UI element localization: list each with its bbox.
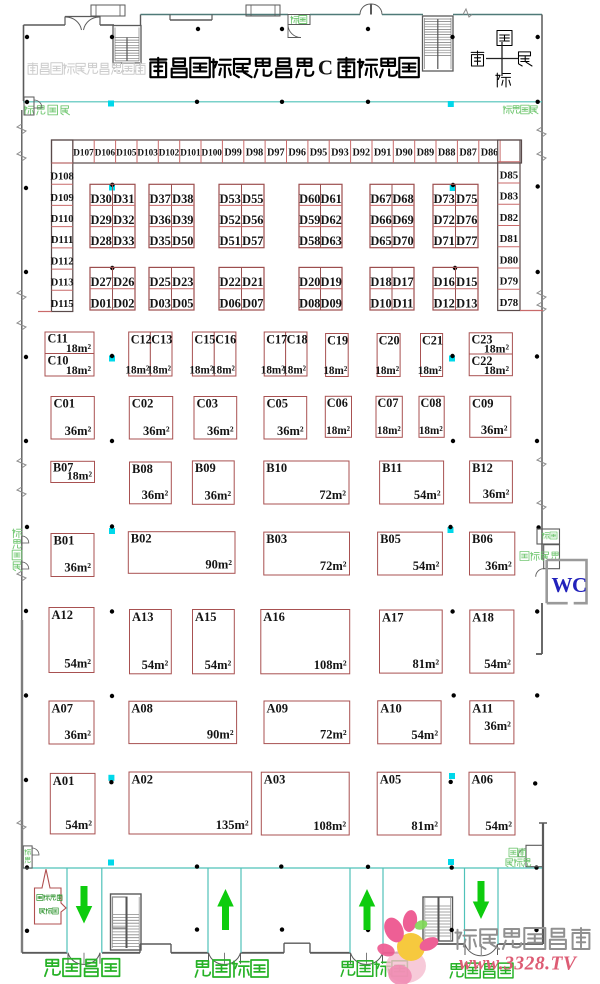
svg-text:C18: C18	[287, 333, 308, 347]
svg-text:D79: D79	[500, 276, 519, 288]
svg-text:36m²: 36m²	[64, 561, 91, 575]
svg-text:D61: D61	[321, 192, 342, 206]
svg-text:C13: C13	[151, 333, 172, 347]
svg-text:81m²: 81m²	[411, 819, 438, 833]
svg-text:18m²: 18m²	[323, 365, 348, 377]
svg-text:D101: D101	[180, 148, 201, 158]
svg-text:D10: D10	[370, 296, 391, 310]
svg-text:36m²: 36m²	[483, 487, 510, 501]
svg-text:108m²: 108m²	[314, 658, 347, 672]
svg-text:D38: D38	[172, 192, 193, 206]
svg-text:90m²: 90m²	[205, 557, 232, 571]
svg-text:D93: D93	[331, 148, 349, 159]
svg-text:D69: D69	[392, 213, 413, 227]
svg-text:C02: C02	[132, 397, 154, 411]
svg-text:D111: D111	[51, 235, 73, 246]
svg-text:C03: C03	[197, 397, 219, 411]
svg-text:D37: D37	[150, 192, 171, 206]
svg-text:D20: D20	[299, 275, 320, 289]
svg-text:54m²: 54m²	[65, 818, 92, 832]
svg-text:B03: B03	[266, 532, 287, 546]
svg-text:D17: D17	[392, 275, 413, 289]
svg-text:36m²: 36m²	[65, 424, 92, 438]
svg-text:D32: D32	[113, 213, 134, 227]
svg-text:36m²: 36m²	[277, 424, 304, 438]
svg-text:D19: D19	[321, 275, 342, 289]
svg-text:A13: A13	[132, 610, 154, 624]
svg-text:D113: D113	[51, 278, 74, 289]
svg-text:D56: D56	[242, 213, 263, 227]
svg-text:C05: C05	[267, 397, 289, 411]
svg-text:D76: D76	[456, 213, 477, 227]
svg-text:D115: D115	[51, 299, 74, 310]
svg-text:D105: D105	[116, 148, 137, 158]
svg-text:D66: D66	[370, 213, 391, 227]
svg-text:36m²: 36m²	[64, 728, 91, 742]
svg-text:C07: C07	[378, 396, 399, 410]
svg-text:D75: D75	[456, 192, 477, 206]
svg-text:A15: A15	[195, 610, 217, 624]
svg-text:D95: D95	[310, 148, 328, 159]
svg-text:D59: D59	[299, 213, 320, 227]
svg-text:D78: D78	[500, 297, 519, 309]
svg-text:D112: D112	[51, 256, 74, 267]
svg-text:D108: D108	[50, 172, 74, 183]
svg-text:A01: A01	[53, 774, 75, 788]
svg-text:36m²: 36m²	[207, 424, 234, 438]
svg-text:D89: D89	[417, 148, 435, 159]
svg-text:D63: D63	[321, 234, 342, 248]
svg-text:81m²: 81m²	[413, 657, 440, 671]
svg-text:D86: D86	[481, 148, 499, 159]
svg-text:D96: D96	[288, 148, 306, 159]
svg-text:D97: D97	[267, 148, 285, 159]
svg-text:C20: C20	[379, 334, 400, 348]
svg-text:D11: D11	[393, 296, 414, 310]
svg-text:B10: B10	[266, 461, 287, 475]
svg-text:D103: D103	[137, 148, 158, 158]
svg-text:54m²: 54m²	[414, 488, 441, 502]
svg-text:D13: D13	[456, 296, 477, 310]
svg-text:D67: D67	[370, 192, 391, 206]
svg-text:D99: D99	[224, 148, 242, 159]
svg-text:18m²: 18m²	[67, 469, 93, 483]
svg-text:C16: C16	[215, 333, 236, 347]
svg-text:D23: D23	[172, 275, 193, 289]
svg-text:C08: C08	[421, 396, 442, 410]
svg-text:D06: D06	[220, 296, 241, 310]
svg-text:18m²: 18m²	[211, 365, 236, 377]
svg-text:D60: D60	[299, 192, 320, 206]
svg-text:A02: A02	[132, 773, 154, 787]
svg-text:D08: D08	[299, 296, 320, 310]
svg-text:D53: D53	[220, 192, 241, 206]
svg-text:D25: D25	[150, 275, 171, 289]
svg-text:D110: D110	[51, 214, 74, 225]
svg-text:D65: D65	[370, 234, 391, 248]
svg-text:D102: D102	[159, 148, 180, 158]
svg-text:C06: C06	[327, 396, 348, 410]
svg-text:36m²: 36m²	[481, 423, 508, 437]
svg-text:D58: D58	[299, 234, 320, 248]
svg-text:B02: B02	[131, 532, 152, 546]
svg-text:D82: D82	[500, 212, 519, 224]
svg-text:54m²: 54m²	[413, 559, 440, 573]
svg-text:18m²: 18m²	[419, 425, 444, 437]
svg-text:D51: D51	[220, 234, 241, 248]
svg-text:C09: C09	[472, 397, 494, 411]
svg-text:D22: D22	[220, 275, 241, 289]
svg-text:D109: D109	[50, 193, 74, 204]
svg-text:D62: D62	[321, 213, 342, 227]
svg-text:D29: D29	[91, 213, 112, 227]
svg-text:C11: C11	[48, 332, 68, 346]
svg-text:D03: D03	[150, 296, 171, 310]
svg-text:A12: A12	[52, 608, 74, 622]
svg-text:72m²: 72m²	[319, 488, 346, 502]
svg-text:D90: D90	[395, 148, 413, 159]
svg-text:72m²: 72m²	[320, 559, 347, 573]
svg-text:D85: D85	[500, 169, 519, 181]
svg-text:D77: D77	[456, 234, 477, 248]
svg-text:B09: B09	[195, 461, 216, 475]
svg-text:18m²: 18m²	[418, 365, 443, 377]
svg-text:A06: A06	[472, 773, 494, 787]
svg-text:D87: D87	[459, 148, 477, 159]
svg-text:D92: D92	[353, 148, 371, 159]
svg-text:54m²: 54m²	[64, 657, 91, 671]
svg-text:A08: A08	[131, 702, 153, 716]
svg-text:D52: D52	[220, 213, 241, 227]
svg-text:18m²: 18m²	[282, 365, 307, 377]
svg-text:C01: C01	[54, 397, 76, 411]
svg-text:18m²: 18m²	[377, 425, 402, 437]
svg-text:D73: D73	[434, 192, 455, 206]
svg-text:36m²: 36m²	[485, 559, 512, 573]
svg-text:D16: D16	[434, 275, 455, 289]
svg-text:A05: A05	[380, 773, 402, 787]
svg-text:18m²: 18m²	[326, 425, 351, 437]
svg-text:D88: D88	[438, 148, 456, 159]
svg-text:D36: D36	[150, 213, 171, 227]
svg-text:B12: B12	[472, 461, 493, 475]
svg-text:D30: D30	[91, 192, 112, 206]
svg-text:C21: C21	[422, 334, 443, 348]
svg-text:C15: C15	[194, 333, 215, 347]
svg-text:D07: D07	[242, 296, 263, 310]
svg-text:D18: D18	[370, 275, 391, 289]
svg-text:D70: D70	[392, 234, 413, 248]
svg-text:D09: D09	[321, 296, 342, 310]
svg-text:D15: D15	[456, 275, 477, 289]
svg-text:18m²: 18m²	[147, 365, 172, 377]
svg-text:A09: A09	[267, 702, 289, 716]
svg-text:A11: A11	[472, 701, 493, 715]
svg-text:D80: D80	[500, 254, 519, 266]
svg-text:D55: D55	[242, 192, 263, 206]
svg-text:D05: D05	[172, 296, 193, 310]
svg-text:D01: D01	[91, 296, 112, 310]
svg-text:D57: D57	[242, 234, 263, 248]
svg-text:36m²: 36m²	[143, 424, 170, 438]
svg-text:D83: D83	[500, 191, 519, 203]
svg-text:www.3328.TV: www.3328.TV	[459, 954, 578, 975]
svg-text:90m²: 90m²	[207, 728, 234, 742]
svg-text:D106: D106	[95, 148, 116, 158]
svg-text:A10: A10	[380, 701, 402, 715]
svg-text:D35: D35	[150, 234, 171, 248]
svg-text:36m²: 36m²	[142, 488, 169, 502]
svg-text:D50: D50	[172, 234, 193, 248]
svg-text:D27: D27	[91, 275, 112, 289]
svg-text:36m²: 36m²	[205, 488, 232, 502]
svg-text:A07: A07	[52, 702, 74, 716]
svg-text:C19: C19	[327, 334, 348, 348]
svg-text:18m²: 18m²	[66, 363, 92, 377]
svg-text:D28: D28	[91, 234, 112, 248]
svg-text:54m²: 54m²	[411, 728, 438, 742]
svg-text:18m²: 18m²	[375, 365, 400, 377]
svg-text:D12: D12	[434, 296, 455, 310]
svg-text:D72: D72	[434, 213, 455, 227]
svg-text:36m²: 36m²	[484, 719, 511, 733]
svg-text:D33: D33	[113, 234, 134, 248]
svg-text:B01: B01	[54, 534, 75, 548]
svg-text:D02: D02	[113, 296, 134, 310]
svg-text:108m²: 108m²	[313, 819, 346, 833]
svg-text:D98: D98	[246, 148, 264, 159]
svg-text:D68: D68	[392, 192, 413, 206]
svg-text:D91: D91	[374, 148, 392, 159]
svg-text:C: C	[318, 56, 333, 80]
svg-text:135m²: 135m²	[216, 818, 249, 832]
svg-text:C12: C12	[131, 333, 152, 347]
svg-text:D81: D81	[500, 233, 519, 245]
svg-text:A16: A16	[263, 610, 285, 624]
svg-text:18m²: 18m²	[484, 363, 510, 377]
svg-text:A17: A17	[382, 611, 404, 625]
svg-text:54m²: 54m²	[485, 819, 512, 833]
svg-text:72m²: 72m²	[320, 728, 347, 742]
svg-text:D31: D31	[113, 192, 134, 206]
svg-text:B06: B06	[472, 532, 493, 546]
svg-text:D21: D21	[242, 275, 263, 289]
svg-text:D100: D100	[201, 148, 222, 158]
svg-text:54m²: 54m²	[142, 658, 169, 672]
svg-text:A03: A03	[264, 773, 286, 787]
svg-text:WC: WC	[552, 573, 587, 597]
svg-text:54m²: 54m²	[205, 658, 232, 672]
svg-text:D26: D26	[113, 275, 134, 289]
svg-text:B05: B05	[380, 532, 401, 546]
svg-text:C17: C17	[266, 333, 287, 347]
svg-text:D107: D107	[73, 148, 94, 158]
svg-text:D39: D39	[172, 213, 193, 227]
svg-text:A18: A18	[472, 611, 494, 625]
svg-text:B08: B08	[132, 462, 153, 476]
svg-text:54m²: 54m²	[484, 657, 511, 671]
svg-text:B11: B11	[382, 461, 402, 475]
svg-text:18m²: 18m²	[66, 341, 92, 355]
svg-text:D71: D71	[434, 234, 455, 248]
